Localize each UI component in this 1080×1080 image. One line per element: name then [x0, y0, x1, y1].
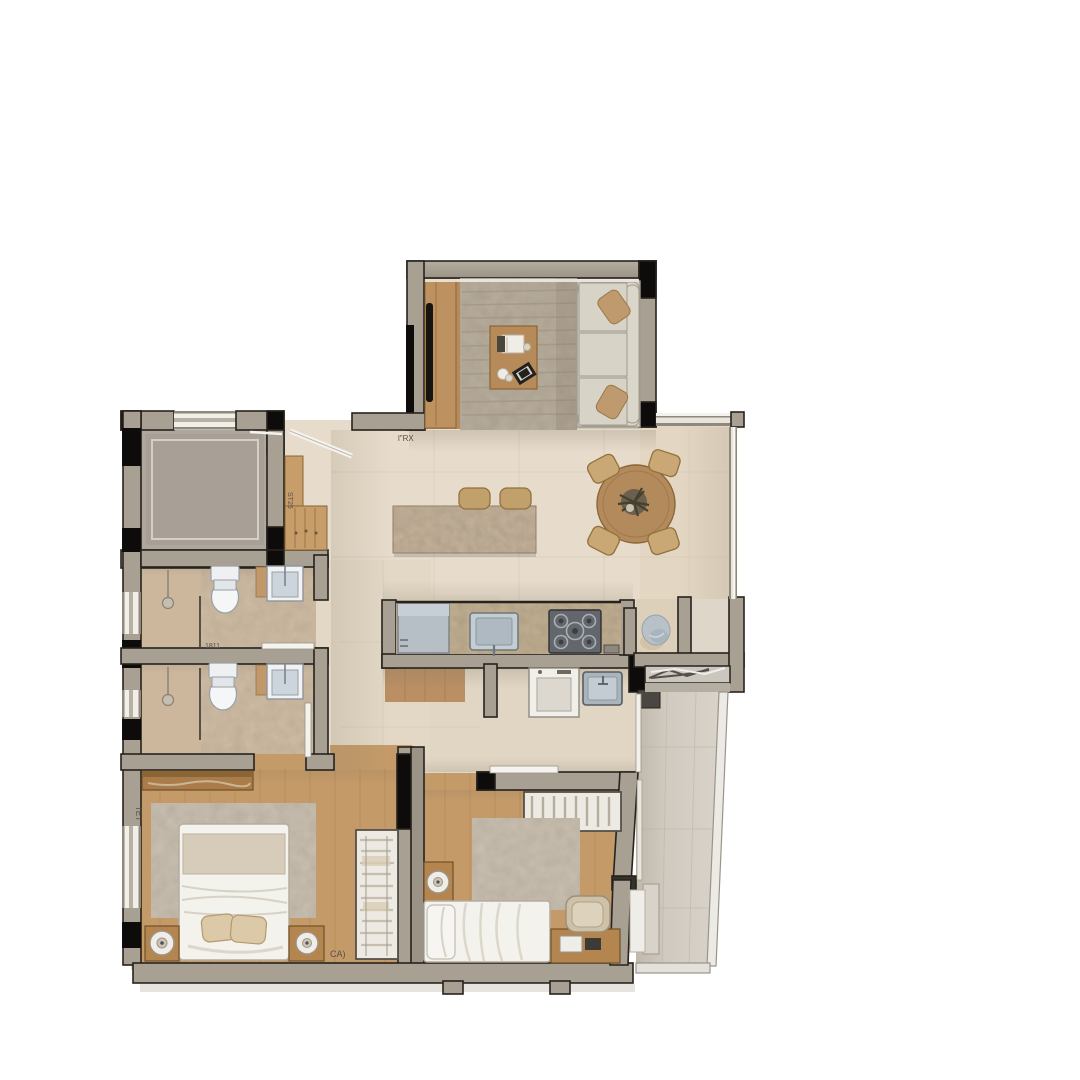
- svg-text:TET: TET: [134, 806, 143, 821]
- svg-text:ST25: ST25: [286, 492, 293, 509]
- svg-text:CA): CA): [330, 949, 346, 959]
- svg-text:1811: 1811: [205, 643, 220, 650]
- svg-text:l"RX: l"RX: [398, 434, 414, 443]
